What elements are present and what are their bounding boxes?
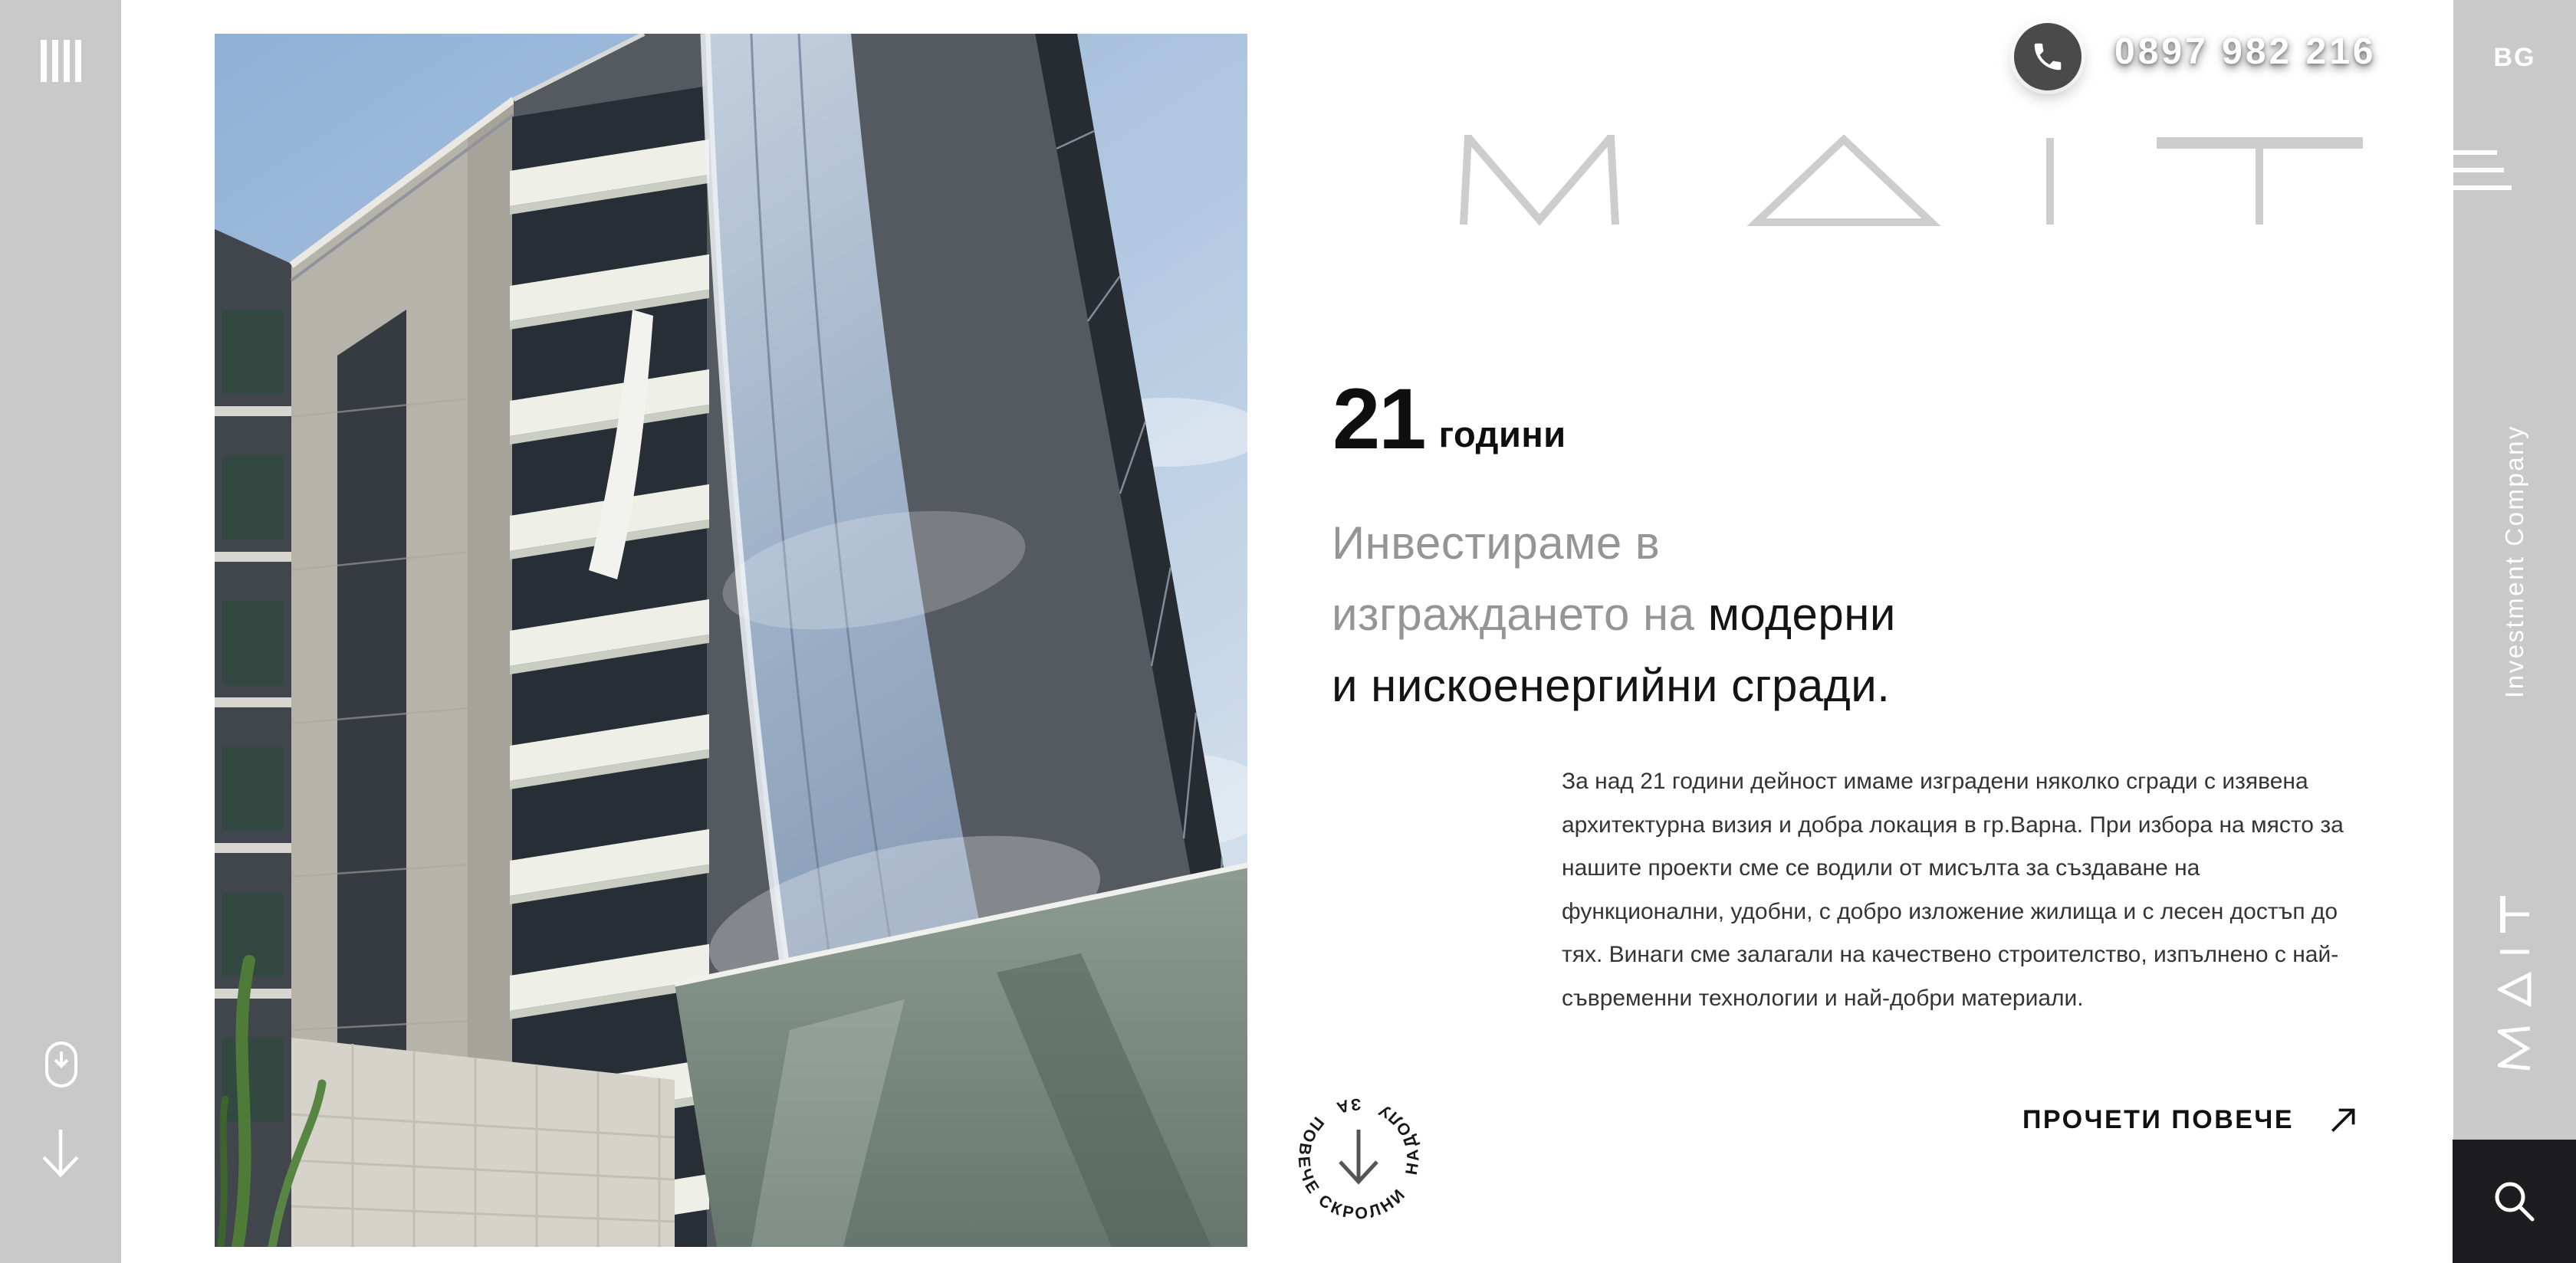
mouse-scroll-icon <box>44 1041 78 1092</box>
years-label: години <box>1439 413 1566 455</box>
heading-line2-dark: модерни <box>1708 589 1896 640</box>
bars-logo-icon <box>41 40 81 82</box>
building-illustration <box>215 34 1247 1247</box>
read-more-link[interactable]: ПРОЧЕТИ ПОВЕЧЕ <box>2022 1104 2360 1136</box>
hamburger-menu-icon[interactable] <box>2453 150 2512 190</box>
logo-mait-graphic <box>1460 135 2364 227</box>
left-rail <box>0 0 121 1263</box>
arrow-up-right-icon <box>2328 1104 2360 1136</box>
scroll-badge: СКРОЛНИ НАДОЛУ ЗА ПОВЕЧЕ <box>1279 1079 1438 1238</box>
scroll-down-arrow-icon <box>39 1128 82 1186</box>
heading-line2-gray: изграждането на <box>1332 589 1708 640</box>
company-tagline: Investment Company <box>2453 387 2576 736</box>
read-more-label: ПРОЧЕТИ ПОВЕЧЕ <box>2022 1105 2294 1135</box>
left-tower <box>215 229 291 1247</box>
heading-line1: Инвестираме в <box>1332 517 1660 569</box>
phone-button[interactable] <box>2014 23 2081 90</box>
years-counter: 21 години <box>1332 379 1566 458</box>
heading-line3: и нискоенергийни сгради. <box>1332 660 1890 711</box>
vertical-logo-mait <box>2498 895 2532 1071</box>
magnifier-icon <box>2490 1177 2539 1226</box>
badge-arrow-down-icon <box>1340 1130 1377 1182</box>
logo-mait[interactable] <box>1460 135 2364 227</box>
language-switcher[interactable]: BG <box>2453 43 2576 73</box>
years-value: 21 <box>1332 379 1425 458</box>
phone-number[interactable]: 0897 982 216 <box>2114 31 2377 73</box>
hero-building-image <box>215 34 1247 1247</box>
search-button[interactable] <box>2453 1140 2576 1263</box>
phone-handset-icon <box>2030 39 2065 74</box>
hero-paragraph: За над 21 години дейност имаме изградени… <box>1562 760 2365 1020</box>
hero-heading: Инвестираме в изграждането на модерни и … <box>1332 507 1896 721</box>
